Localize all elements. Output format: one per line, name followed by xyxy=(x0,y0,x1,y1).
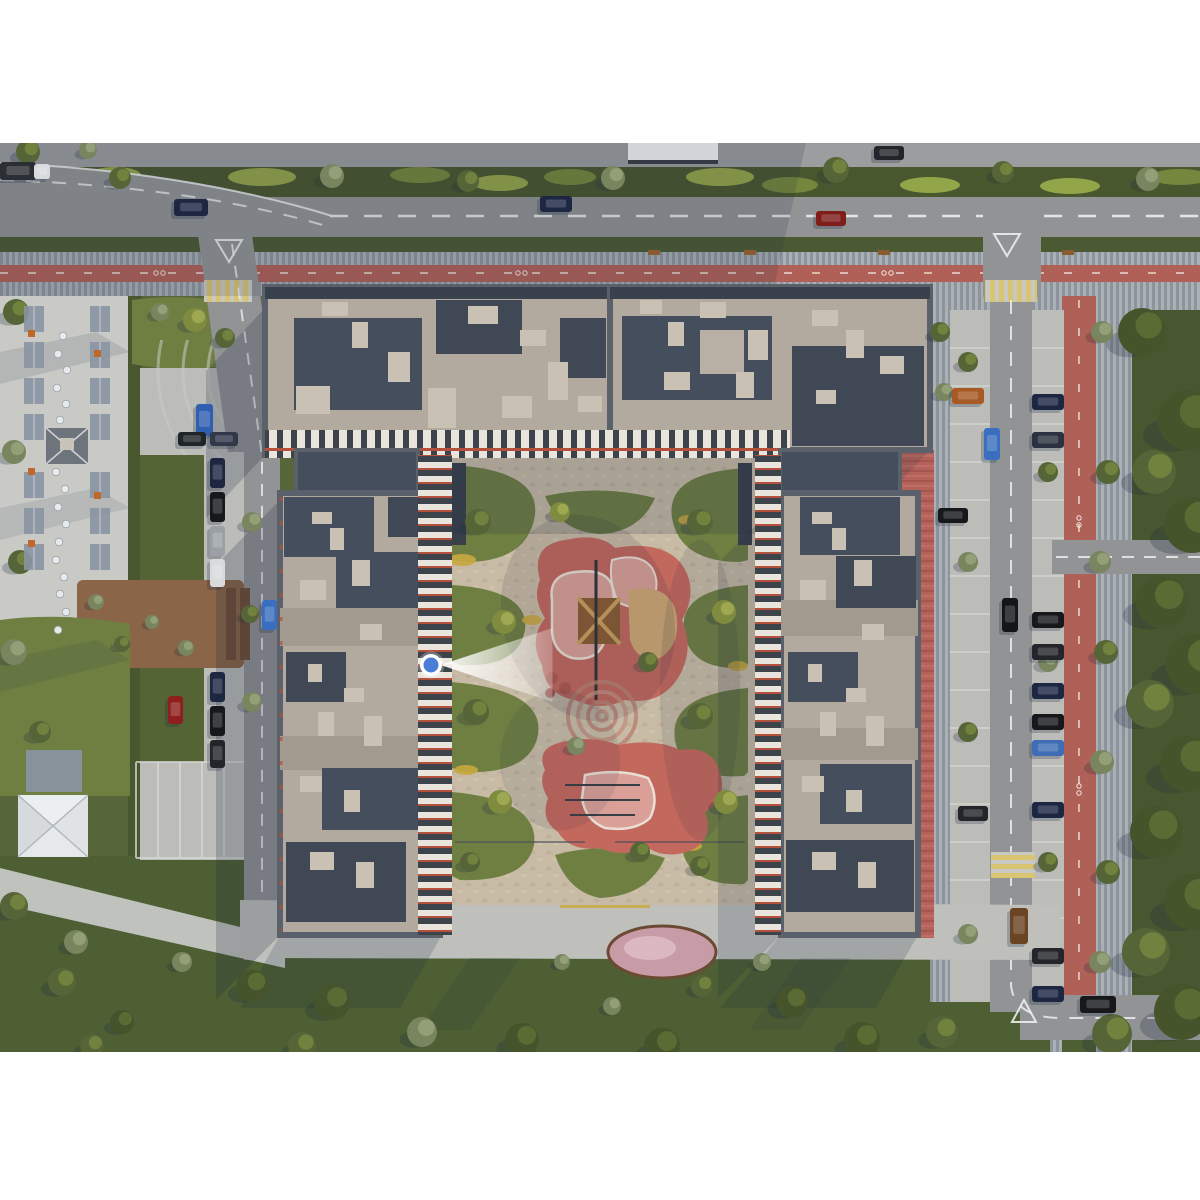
tree-highlight xyxy=(1045,854,1056,865)
tree-highlight xyxy=(560,955,569,964)
car-roof xyxy=(1038,616,1058,624)
tree-highlight xyxy=(697,858,708,869)
bench xyxy=(1062,250,1074,255)
parking-green-strip xyxy=(140,455,204,580)
car-roof xyxy=(943,511,962,519)
car-roof xyxy=(963,809,982,817)
tree-highlight xyxy=(474,511,488,525)
tree-highlight xyxy=(645,654,656,665)
pink-flowerbed-highlight xyxy=(624,936,676,960)
crosswalk-street-south xyxy=(991,852,1035,878)
bench xyxy=(744,250,756,255)
tree-highlight xyxy=(10,894,25,909)
cafe-table xyxy=(60,573,68,581)
car-roof xyxy=(1013,916,1025,934)
tree-highlight xyxy=(1145,169,1158,182)
tree-highlight xyxy=(1140,932,1166,958)
tree-highlight xyxy=(465,172,477,184)
tree-highlight xyxy=(657,1031,677,1051)
aerial-masterplan-view xyxy=(0,0,1200,1200)
tree-highlight xyxy=(696,511,710,525)
tree-highlight xyxy=(760,955,770,965)
tree-highlight xyxy=(472,701,486,715)
food-stall xyxy=(28,540,35,547)
tree-highlight xyxy=(574,739,584,749)
tree-highlight xyxy=(89,1036,102,1049)
building-northeast xyxy=(610,287,930,450)
tree-highlight xyxy=(94,595,103,604)
car-roof xyxy=(1038,648,1058,656)
tree-highlight xyxy=(10,641,24,655)
car-roof xyxy=(1038,398,1058,406)
car-roof xyxy=(6,166,29,175)
tree-highlight xyxy=(1105,862,1118,875)
car-roof xyxy=(1005,605,1015,622)
cafe-table xyxy=(56,590,64,598)
cafe-table xyxy=(52,468,60,476)
car-roof xyxy=(213,465,223,480)
tree-highlight xyxy=(37,723,49,735)
car-roof xyxy=(1038,687,1058,695)
car-roof xyxy=(213,679,223,694)
tree-highlight xyxy=(1149,810,1178,839)
tree-highlight xyxy=(150,616,158,624)
car-roof xyxy=(199,411,210,427)
cafe-table xyxy=(59,332,67,340)
tree-highlight xyxy=(1105,462,1118,475)
tree-highlight xyxy=(11,442,24,455)
cafe-table xyxy=(62,400,70,408)
cafe-table xyxy=(54,626,62,634)
tree-highlight xyxy=(938,1019,956,1037)
cafe-table xyxy=(62,608,70,616)
tree-highlight xyxy=(418,1020,435,1037)
tree-highlight xyxy=(1107,1017,1129,1039)
tree-highlight xyxy=(1097,553,1109,565)
tree-highlight xyxy=(1099,752,1112,765)
panorama-viewpoint-marker[interactable] xyxy=(424,658,439,673)
tree-highlight xyxy=(723,792,736,805)
tree-highlight xyxy=(965,554,976,565)
tree-highlight xyxy=(192,310,205,323)
umbrella-pavilion xyxy=(18,795,88,857)
food-stall xyxy=(28,468,35,475)
tree-highlight xyxy=(857,1025,877,1045)
bench xyxy=(878,250,890,255)
cafe-table xyxy=(55,538,63,546)
tree-highlight xyxy=(248,607,258,617)
tree-highlight xyxy=(158,305,168,315)
tree-highlight xyxy=(329,166,342,179)
tree-highlight xyxy=(696,705,710,719)
tree-highlight xyxy=(248,973,266,991)
cafe-table xyxy=(61,485,69,493)
car-roof xyxy=(1038,718,1058,726)
tree-highlight xyxy=(1045,464,1056,475)
tree-highlight xyxy=(1000,163,1012,175)
tree-highlight xyxy=(557,504,568,515)
tree-highlight xyxy=(73,932,86,945)
tree-highlight xyxy=(249,514,260,525)
tree-highlight xyxy=(497,792,510,805)
tree-highlight xyxy=(25,142,38,155)
car-roof xyxy=(546,200,566,208)
tree-highlight xyxy=(119,1012,132,1025)
parking-bays-west xyxy=(950,310,990,1002)
food-stall xyxy=(94,350,101,357)
car-roof xyxy=(213,533,223,548)
food-stall xyxy=(94,492,101,499)
cafe-table xyxy=(56,416,64,424)
tree-highlight xyxy=(1103,642,1116,655)
car-roof xyxy=(987,435,997,451)
car-roof xyxy=(1038,806,1058,814)
masterplan-render xyxy=(0,0,1200,1200)
pavilion-skylight xyxy=(60,438,74,450)
car-roof xyxy=(215,435,233,442)
tree-highlight xyxy=(117,169,129,181)
tree-highlight xyxy=(937,324,948,335)
tree-highlight xyxy=(249,694,260,705)
tree-highlight xyxy=(1155,580,1184,609)
letterbox-bottom xyxy=(0,1052,1200,1200)
tree-highlight xyxy=(832,159,846,173)
cafe-table xyxy=(52,556,60,564)
tree-highlight xyxy=(721,602,734,615)
tree-highlight xyxy=(965,354,976,365)
tree-highlight xyxy=(327,987,347,1007)
food-stall xyxy=(28,330,35,337)
cafe-table xyxy=(63,366,71,374)
car-roof xyxy=(213,713,223,728)
tree-highlight xyxy=(1144,684,1170,710)
cafe-table xyxy=(53,384,61,392)
tree-highlight xyxy=(1136,312,1162,338)
building-northwest xyxy=(265,287,610,455)
car-roof xyxy=(1038,952,1058,960)
tree-highlight xyxy=(965,926,976,937)
tree-highlight xyxy=(58,970,73,985)
car-roof xyxy=(1038,744,1058,752)
east-wing-courtyard-facade xyxy=(755,455,781,935)
car-roof xyxy=(879,149,898,156)
car-roof xyxy=(213,499,223,514)
tree-highlight xyxy=(222,330,233,341)
pergola-south xyxy=(26,750,82,792)
tree-highlight xyxy=(517,1026,536,1045)
tree-highlight xyxy=(610,168,623,181)
tree-highlight xyxy=(179,954,190,965)
cafe-table xyxy=(62,520,70,528)
car-roof xyxy=(183,435,201,442)
cafe-table xyxy=(54,350,62,358)
car-roof xyxy=(1038,990,1058,998)
building-east-wing xyxy=(755,450,918,935)
car-roof xyxy=(171,702,181,716)
car-roof xyxy=(821,214,840,222)
tree-highlight xyxy=(1148,454,1172,478)
tree-highlight xyxy=(298,1034,313,1049)
letterbox-top xyxy=(0,0,1200,143)
car-roof xyxy=(180,203,202,212)
tree-highlight xyxy=(965,724,976,735)
bench xyxy=(648,250,660,255)
tree-highlight xyxy=(699,977,711,989)
car-roof xyxy=(213,746,223,760)
tree-highlight xyxy=(788,989,806,1007)
car-roof xyxy=(1038,436,1058,444)
tree-highlight xyxy=(501,612,514,625)
tree-highlight xyxy=(637,844,648,855)
cafe-table xyxy=(54,503,62,511)
west-wing-courtyard-facade xyxy=(418,455,452,935)
tree-highlight xyxy=(184,641,193,650)
tree-highlight xyxy=(86,143,96,153)
car-roof xyxy=(213,565,223,579)
tree-highlight xyxy=(1097,953,1109,965)
tree-highlight xyxy=(467,854,478,865)
car-roof xyxy=(1086,1000,1109,1009)
car-roof xyxy=(958,392,978,400)
car-roof xyxy=(265,607,275,622)
tree-highlight xyxy=(610,999,620,1009)
tree-highlight xyxy=(1099,323,1111,335)
building-west-wing xyxy=(280,450,452,935)
tree-highlight xyxy=(120,637,129,646)
car-roof xyxy=(37,167,47,175)
crosswalk-east-junction xyxy=(985,280,1037,302)
